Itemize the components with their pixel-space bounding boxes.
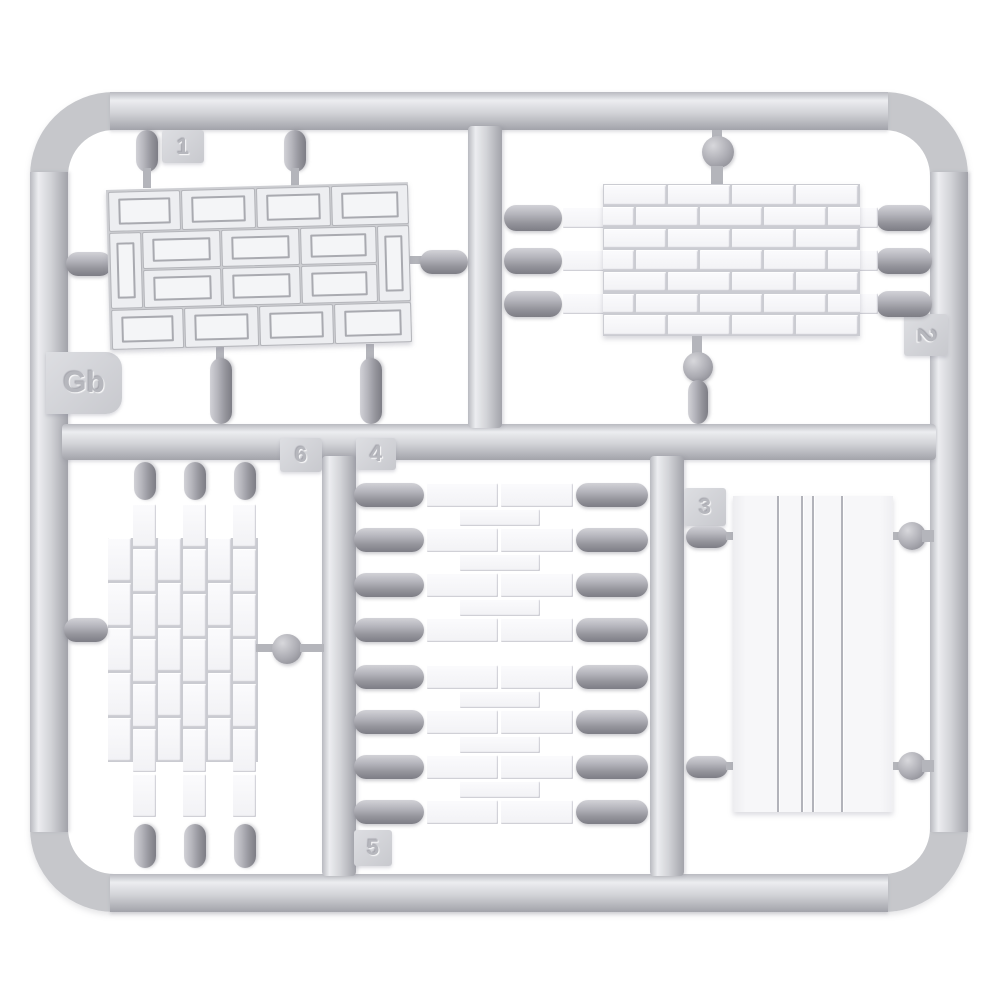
part-2-brick-wall (603, 184, 860, 336)
brick (668, 185, 730, 204)
sprue-gate (134, 824, 156, 868)
brick (764, 250, 826, 269)
brick (460, 554, 540, 571)
brick (158, 673, 181, 716)
sprue-gate (354, 755, 424, 779)
brick (603, 207, 634, 226)
brick (158, 628, 181, 671)
part-number-tag-2: 2 (904, 314, 948, 356)
brick (501, 573, 573, 597)
brick (828, 294, 860, 313)
sprue-gate (876, 248, 932, 274)
framed-brick (109, 232, 143, 309)
part-1-framed-brick-panel (106, 182, 412, 350)
brick (427, 528, 498, 552)
sprue-gate (420, 250, 468, 274)
sprue-gate (354, 618, 424, 642)
brick (501, 483, 573, 507)
sprue-gate (354, 528, 424, 552)
brick (460, 691, 540, 708)
brick (427, 800, 498, 824)
gate-stem (143, 168, 151, 188)
brick (732, 315, 794, 334)
brick (108, 538, 131, 581)
sprue-gate (354, 483, 424, 507)
brick (427, 755, 498, 779)
brick (501, 800, 573, 824)
framed-brick (142, 230, 221, 269)
brick (501, 528, 573, 552)
sprue-gate (876, 205, 932, 231)
brick (183, 594, 206, 637)
sprue-gate (504, 205, 562, 231)
sprue-gate (504, 291, 562, 317)
sprue-gate (136, 130, 158, 172)
brick (183, 639, 206, 682)
brick (603, 294, 634, 313)
brick (183, 504, 206, 547)
bottom-rail (110, 874, 888, 912)
sprue-gate (576, 665, 648, 689)
framed-brick (221, 228, 300, 267)
brick (133, 549, 156, 592)
brick (604, 315, 666, 334)
right-rail (930, 172, 968, 832)
framed-brick (334, 302, 412, 344)
gate-stem (922, 760, 934, 772)
part-5-brick-strip (426, 664, 574, 825)
sprue-gate (354, 573, 424, 597)
top-rail (110, 92, 888, 130)
brick (133, 729, 156, 772)
brick (133, 639, 156, 682)
sprue-gate (686, 526, 728, 548)
brick (501, 665, 573, 689)
framed-brick (259, 304, 334, 346)
panel-groove (801, 496, 803, 812)
part-number-tag-5: 5 (354, 830, 392, 866)
sprue-photo: 1 Gb 2 6 4 5 3 (0, 0, 1000, 1000)
brick (427, 573, 498, 597)
brick (858, 293, 878, 314)
brick (604, 272, 666, 291)
brick (603, 250, 634, 269)
brick (108, 718, 131, 761)
brick (563, 207, 605, 228)
brick (460, 781, 540, 798)
brick (208, 718, 231, 761)
brick (183, 684, 206, 727)
part-number-tag-6: 6 (280, 438, 322, 472)
middle-rail (62, 424, 936, 460)
sprue-gate (576, 710, 648, 734)
brick (796, 185, 858, 204)
framed-brick (108, 190, 181, 232)
brick (108, 583, 131, 626)
brick (460, 599, 540, 616)
framed-brick (184, 306, 259, 348)
brick (732, 272, 794, 291)
brick (158, 538, 181, 581)
brick (732, 229, 794, 248)
top-center-divider-rail (468, 126, 502, 428)
brick (427, 483, 498, 507)
sprue-gate (234, 462, 256, 500)
sprue-gate (576, 573, 648, 597)
brick (796, 315, 858, 334)
framed-brick (181, 188, 256, 230)
framed-brick (377, 225, 411, 302)
part-6-vertical-brick-wall (108, 500, 258, 822)
brick (427, 618, 498, 642)
brick (208, 628, 231, 671)
brick (636, 250, 698, 269)
brick (233, 774, 256, 817)
panel-groove (777, 496, 779, 812)
sprue-gate (576, 755, 648, 779)
sprue-gate (576, 618, 648, 642)
brick (108, 673, 131, 716)
brick (796, 229, 858, 248)
brick (700, 294, 762, 313)
brick (208, 538, 231, 581)
brick (604, 229, 666, 248)
brick (133, 594, 156, 637)
framed-brick (143, 268, 222, 308)
brick (133, 684, 156, 727)
sprue-gate (688, 380, 708, 424)
framed-brick (222, 266, 301, 306)
part-4-brick-strip (426, 482, 574, 643)
brick (563, 293, 605, 314)
ball-gate (702, 136, 734, 168)
sprue-gate (234, 824, 256, 868)
panel-groove (841, 496, 843, 812)
left-rail (30, 172, 68, 832)
brick (460, 509, 540, 526)
brick (183, 774, 206, 817)
framed-brick (256, 186, 331, 228)
sprue-gate (284, 130, 306, 172)
brick (233, 639, 256, 682)
brick (668, 272, 730, 291)
brick (501, 710, 573, 734)
brick (183, 549, 206, 592)
sprue-gate (576, 800, 648, 824)
brick (233, 594, 256, 637)
sprue-gate (576, 528, 648, 552)
brick (427, 665, 498, 689)
bottom-right-divider-rail (650, 456, 684, 876)
part-number-tag-4: 4 (356, 438, 396, 470)
brick (636, 294, 698, 313)
brick (563, 250, 605, 271)
brick (700, 207, 762, 226)
part-3-grooved-panel (733, 496, 893, 812)
mold-letter-tag-gb: Gb (46, 352, 122, 414)
brick (208, 583, 231, 626)
panel-groove (812, 496, 814, 812)
brick (796, 272, 858, 291)
brick (858, 207, 878, 228)
sprue-gate (354, 800, 424, 824)
brick (636, 207, 698, 226)
ball-gate (683, 352, 713, 382)
part-number-tag-3: 3 (684, 488, 726, 526)
brick (233, 504, 256, 547)
sprue-gate (184, 824, 206, 868)
brick (604, 185, 666, 204)
brick (668, 229, 730, 248)
sprue-gate (876, 291, 932, 317)
brick (501, 755, 573, 779)
framed-brick (111, 308, 184, 350)
sprue-gate (686, 756, 728, 778)
brick (700, 250, 762, 269)
brick (158, 718, 181, 761)
brick (133, 504, 156, 547)
sprue-gate (184, 462, 206, 500)
brick (668, 315, 730, 334)
brick (427, 710, 498, 734)
brick (133, 774, 156, 817)
brick (460, 736, 540, 753)
bottom-left-divider-rail (322, 456, 356, 876)
brick (233, 729, 256, 772)
gate-stem (922, 530, 934, 542)
brick (233, 549, 256, 592)
framed-brick (300, 226, 377, 265)
framed-brick (301, 264, 378, 304)
gate-stem (300, 644, 324, 652)
brick (208, 673, 231, 716)
sprue-gate (354, 710, 424, 734)
sprue-gate (504, 248, 562, 274)
brick (233, 684, 256, 727)
sprue-gate (360, 358, 382, 424)
brick (828, 207, 860, 226)
brick (158, 583, 181, 626)
part-number-tag-1: 1 (162, 130, 204, 163)
brick (764, 294, 826, 313)
gate-stem (711, 166, 723, 186)
brick (501, 618, 573, 642)
sprue-gate (64, 618, 108, 642)
sprue-gate (134, 462, 156, 500)
brick (764, 207, 826, 226)
brick (828, 250, 860, 269)
sprue-gate (210, 358, 232, 424)
sprue-gate (354, 665, 424, 689)
ball-gate (272, 634, 302, 664)
brick (858, 250, 878, 271)
framed-brick (331, 184, 409, 226)
brick (732, 185, 794, 204)
sprue-gate (66, 252, 112, 276)
brick (183, 729, 206, 772)
sprue-gate (576, 483, 648, 507)
brick (108, 628, 131, 671)
